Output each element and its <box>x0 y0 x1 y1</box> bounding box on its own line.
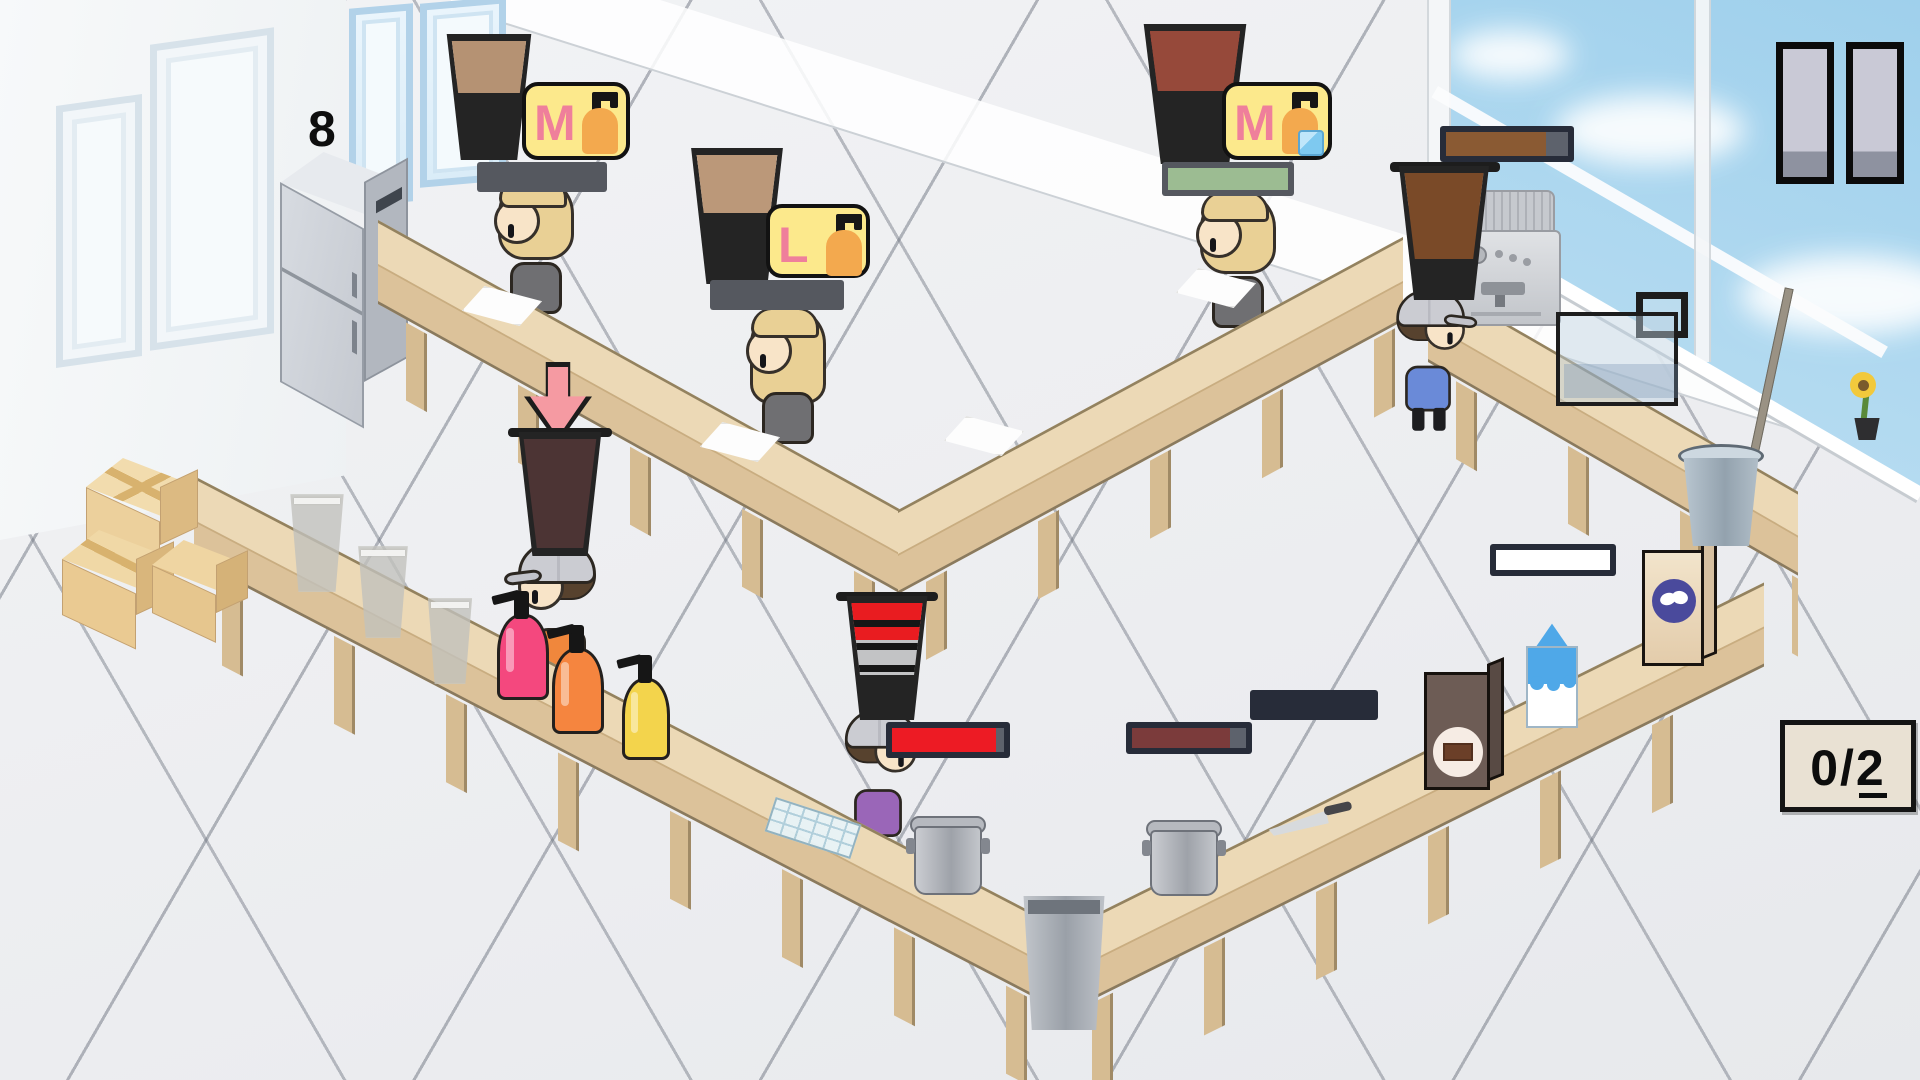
progress-segments <box>1256 696 1372 714</box>
pause-icon <box>1846 42 1904 184</box>
stock-pot[interactable] <box>1150 816 1218 898</box>
progress-segments <box>716 286 838 304</box>
hair-fringe <box>751 308 819 338</box>
fridge-door-seam <box>282 267 362 315</box>
pump-tip <box>610 92 618 108</box>
syrup-bottle-yellow[interactable] <box>622 678 670 760</box>
order-size-label: L <box>778 216 809 274</box>
bar-fill <box>1168 168 1288 190</box>
order-cup-measure[interactable] <box>842 596 932 720</box>
box-front <box>1642 550 1704 666</box>
pot-handle <box>981 838 990 854</box>
acrylic-bin[interactable] <box>1556 312 1678 406</box>
progress-bar <box>1440 126 1574 162</box>
pause-icon <box>1776 42 1834 184</box>
carton-drip <box>1530 676 1544 690</box>
box-logo <box>1433 727 1483 777</box>
syrup-bottle-pink[interactable] <box>497 614 549 700</box>
logo-bean <box>1671 589 1690 605</box>
fridge-logo <box>376 187 402 213</box>
order-cup-brew[interactable] <box>1394 166 1494 300</box>
machine-button <box>1495 250 1503 258</box>
pump-tip <box>854 214 862 230</box>
worker-blue <box>1384 290 1472 422</box>
pump-body <box>826 230 862 276</box>
goal-counter: 0/2 <box>1780 720 1916 812</box>
stock-pot[interactable] <box>914 812 982 898</box>
eye <box>508 224 514 238</box>
wall-panel-inner <box>72 112 126 350</box>
bin-inner-shade <box>1564 364 1678 398</box>
order-bubble: M <box>1222 82 1332 160</box>
bar-track <box>1132 728 1246 748</box>
progress-bar <box>1250 690 1378 720</box>
bar-fill <box>1446 132 1546 156</box>
order-bubble: M <box>522 82 630 160</box>
drink-layer <box>450 41 529 93</box>
milk-carton[interactable] <box>1522 622 1582 730</box>
syrup-bottle-orange[interactable] <box>552 648 604 734</box>
trash-bin[interactable] <box>1018 896 1110 1030</box>
knife-handle <box>1323 801 1352 816</box>
order-bubble: L <box>766 204 870 278</box>
bar-fill <box>1496 550 1610 570</box>
bar-track <box>1446 132 1568 156</box>
fridge-stock-count: 8 <box>308 100 336 158</box>
order-size-label: M <box>1234 94 1276 152</box>
order-size-label: M <box>534 94 576 152</box>
bottle-shine <box>631 692 638 734</box>
fridge-handle <box>352 272 357 299</box>
fridge-front <box>280 182 364 429</box>
drink-layer <box>694 155 780 213</box>
progress-bar <box>886 722 1010 758</box>
drink-layer <box>1402 173 1486 259</box>
pot-body <box>914 826 982 895</box>
worker-body <box>1405 366 1451 412</box>
carton-body <box>1526 646 1578 728</box>
bar-track <box>1168 168 1288 190</box>
progress-bar <box>1162 162 1294 196</box>
legs <box>1410 408 1445 431</box>
chocolate-bar-icon <box>1443 743 1473 761</box>
cloud <box>1450 30 1570 80</box>
progress-segments <box>483 168 601 186</box>
syrup-pump-icon <box>582 92 626 154</box>
carton-drip <box>1563 675 1576 688</box>
knife-blade <box>1268 811 1329 837</box>
carton-drip <box>1547 678 1560 691</box>
game-stage: 8 <box>0 0 1920 1080</box>
machine-spout <box>1495 295 1505 307</box>
goal-underline <box>1859 793 1887 798</box>
pot-handle <box>906 838 915 854</box>
drink-layer <box>1147 31 1243 91</box>
eye <box>760 354 766 368</box>
box-front <box>1424 672 1490 790</box>
eye <box>1210 238 1216 252</box>
cardboard-box[interactable] <box>152 540 248 640</box>
progress-bar <box>710 280 844 310</box>
eye <box>1447 332 1452 344</box>
box-logo <box>1652 579 1696 623</box>
box-side <box>1487 657 1504 782</box>
machine-button <box>1523 258 1531 266</box>
progress-bar <box>1490 544 1616 576</box>
hair-fringe <box>1201 192 1269 222</box>
bottle-shine <box>561 662 568 706</box>
order-cup-dark[interactable] <box>514 432 606 556</box>
box-side <box>1701 538 1717 660</box>
bottle-shine <box>506 628 513 672</box>
fridge-handle <box>352 320 357 355</box>
progress-bar <box>1126 722 1252 754</box>
progress-bar <box>477 162 607 192</box>
bar-track <box>892 728 1004 752</box>
pot-handle <box>1217 840 1226 856</box>
machine-drip-tray <box>1471 312 1541 316</box>
pump-tip <box>1310 92 1318 108</box>
pot-body <box>1150 830 1218 896</box>
bucket-body <box>1682 458 1760 546</box>
ice-cube-icon <box>1298 130 1324 156</box>
wall-panel-inner <box>166 46 258 333</box>
pot-handle <box>1142 840 1151 856</box>
bin-opening <box>1028 900 1100 914</box>
wall-panel <box>150 27 274 350</box>
pump-body <box>582 108 618 154</box>
window-mullion <box>1694 0 1711 362</box>
goal-counter-text: 0/2 <box>1785 739 1911 797</box>
mop-bucket[interactable] <box>1678 442 1764 548</box>
cloud <box>1555 95 1745 165</box>
chocolate-box[interactable] <box>1424 664 1504 792</box>
bar-fill <box>892 728 996 752</box>
wall-panel <box>56 94 142 368</box>
bar-fill <box>1132 728 1230 748</box>
syrup-pump-icon <box>826 214 870 276</box>
sunflower-center <box>1858 380 1869 391</box>
eye <box>532 590 538 604</box>
cereal-box[interactable] <box>1642 544 1714 666</box>
pause-button[interactable] <box>1776 42 1906 188</box>
bar-track <box>1496 550 1610 570</box>
machine-button <box>1509 254 1517 262</box>
